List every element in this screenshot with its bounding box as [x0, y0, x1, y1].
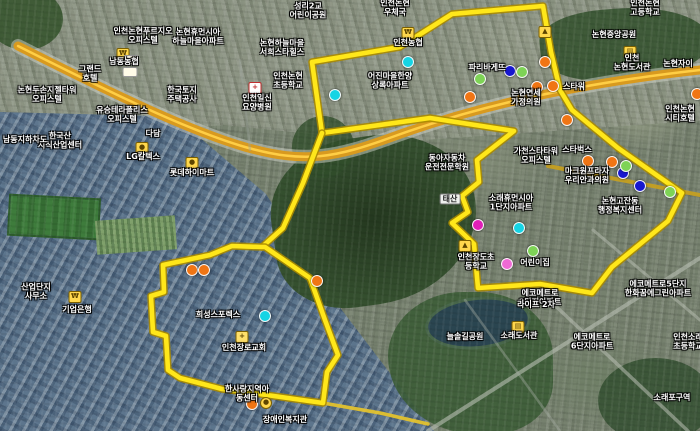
school-icon[interactable]: ▲: [459, 240, 472, 252]
map-label-line: 상록아파트: [368, 81, 412, 90]
map-label-line: 호텔: [79, 74, 101, 83]
map-label: 인천일신요양병원: [242, 95, 271, 112]
green-poi-marker[interactable]: [474, 73, 486, 85]
map-label: 한사랑지역아동센터: [225, 386, 269, 403]
green-poi-marker[interactable]: [527, 245, 539, 257]
map-label-line: 서희스타힐스: [260, 48, 304, 57]
map-label-line: LG칼텍스: [126, 153, 160, 162]
blue-poi-marker[interactable]: [634, 180, 646, 192]
map-label-line: 스타벅스: [562, 146, 591, 155]
map-label: 에코메트로5단지한화꿈에그린아파트: [625, 281, 691, 298]
road: [323, 403, 428, 424]
blue-poi-marker[interactable]: [504, 65, 516, 77]
map-label-line: 남동농협: [109, 58, 138, 67]
orange-poi-marker[interactable]: [464, 91, 476, 103]
map-label-line: 논현자이: [663, 60, 692, 69]
hospital-icon[interactable]: +: [249, 82, 262, 94]
map-label: 논현두손지젤타워오피스텔: [18, 87, 77, 104]
orange-poi-marker[interactable]: [691, 88, 700, 100]
map-label: 기업은행: [62, 306, 91, 315]
map-label-line: 우체국: [380, 8, 409, 17]
map-label: 인천장도초등학교: [458, 254, 495, 271]
map-label-line: 초등학교: [273, 81, 302, 90]
map-label: 태산: [440, 194, 461, 205]
map-label-line: 1단지아파트: [489, 203, 533, 212]
map-label: 늘솔길공원: [447, 333, 484, 342]
map-label-line: 논현도서관: [614, 63, 651, 72]
map-label-line: 남동지하차도: [3, 136, 47, 145]
map-label-line: 행정복지센터: [598, 206, 642, 215]
map-label: 라이프 2차: [517, 301, 555, 310]
green-poi-marker[interactable]: [516, 66, 528, 78]
map-label: 논현중앙공원: [592, 31, 636, 40]
map-label: 어진마을한양상록아파트: [368, 73, 412, 90]
map-label: 그랜드호텔: [79, 66, 101, 83]
map-label: 남동지하차도: [3, 136, 47, 145]
map-label: 스타벅스: [562, 146, 591, 155]
map-label: 파리바게뜨: [469, 64, 506, 73]
map-label: 가천스타타워오피스텔: [514, 148, 558, 165]
map-label: 소래포구역: [654, 394, 691, 403]
map-label: 한국토지주택공사: [167, 87, 196, 104]
map-label-line: 소래도서관: [501, 332, 538, 341]
orange-poi-marker[interactable]: [561, 114, 573, 126]
orange-poi-marker[interactable]: [539, 56, 551, 68]
map-label-line: 파리바게뜨: [469, 64, 506, 73]
map-label: 논현연세가정의원: [511, 90, 540, 107]
map-label: 어린이집: [520, 259, 549, 268]
map-label: 희성스포렉스: [196, 311, 240, 320]
map-label-line: 오피스텔: [514, 156, 558, 165]
map-label: 산업단지사무소: [21, 284, 50, 301]
pink-poi-marker[interactable]: [501, 258, 513, 270]
map-label-line: 롯데하이마트: [170, 169, 214, 178]
map-label-line: 고등학교: [630, 8, 659, 17]
cyan-poi-marker[interactable]: [513, 222, 525, 234]
map-label: 인천논현고등학교: [630, 0, 659, 17]
map-label-line: 시티호텔: [665, 114, 694, 123]
orange-poi-marker[interactable]: [186, 264, 198, 276]
green-poi-marker[interactable]: [664, 186, 676, 198]
map-label: 스타워: [563, 83, 585, 92]
map-label: 논현휴먼시아하늘마을아파트: [172, 29, 224, 46]
map-label-line: 소래포구역: [654, 394, 691, 403]
map-label-line: 논현중앙공원: [592, 31, 636, 40]
map-label: LG칼텍스: [126, 153, 160, 162]
magenta-poi-marker[interactable]: [472, 219, 484, 231]
map-label-line: 한화꿈에그린아파트: [625, 289, 691, 298]
map-label-line: 인천농협: [393, 39, 422, 48]
map-label: 유승테라폴리스오피스텔: [96, 107, 148, 124]
map-label: 인천소래초등학교: [673, 334, 700, 351]
map-label-line: 스타워: [563, 83, 585, 92]
road: [465, 300, 560, 431]
map-label-line: 희성스포렉스: [196, 311, 240, 320]
map-label-line: 하늘마을아파트: [172, 37, 224, 46]
orange-poi-marker[interactable]: [582, 155, 594, 167]
map-label: 다담: [146, 130, 161, 139]
district-boundary: [151, 246, 338, 403]
map-label: 인천논현초등학교: [273, 73, 302, 90]
map-label: 인천논현도서관: [614, 55, 651, 72]
map-label: 인천논현우체국: [380, 0, 409, 17]
map-label-line: 오피스텔: [18, 95, 77, 104]
map-label-line: 초등학교: [673, 342, 700, 351]
map-label: 남동농협: [109, 58, 138, 67]
map-label-line: 기업은행: [62, 306, 91, 315]
map-label-line: 다담: [146, 130, 161, 139]
map-label-line: 6단지아파트: [571, 342, 613, 351]
map-label: 인천논현푸르지오오피스텔: [114, 28, 173, 45]
map-label: 장애인복지관: [263, 416, 307, 425]
green-poi-marker[interactable]: [620, 160, 632, 172]
map-label-line: 라이프 2차: [517, 301, 555, 310]
overlay-svg: [0, 0, 700, 431]
map-label-line: 어린이공원: [290, 11, 327, 20]
map-label: 인천장로교회: [222, 344, 266, 353]
map-label: 롯데하이마트: [170, 169, 214, 178]
map-label-line: 가정의원: [511, 98, 540, 107]
map-label: 소래도서관: [501, 332, 538, 341]
map-label: 성리2교어린이공원: [290, 3, 327, 20]
map-label: 논현하늘마을서희스타힐스: [260, 40, 304, 57]
orange-poi-marker[interactable]: [547, 80, 559, 92]
school-icon[interactable]: ▲: [539, 26, 552, 38]
map-label-line: 오피스텔: [96, 115, 148, 124]
cyan-poi-marker[interactable]: [329, 89, 341, 101]
map-label-line: 어린이집: [520, 259, 549, 268]
map-label: 동아자동차운전전문학원: [425, 155, 469, 172]
cyan-poi-marker[interactable]: [259, 310, 271, 322]
orange-poi-marker[interactable]: [198, 264, 210, 276]
map-label: 논현자이: [663, 60, 692, 69]
map-label: 인천논현시티호텔: [665, 106, 694, 123]
map-label: 논현고잔동행정복지센터: [598, 198, 642, 215]
orange-poi-marker[interactable]: [311, 275, 323, 287]
satellite-map-view[interactable]: ₩₩₩▤▤●●+▲▲+●인천논현푸르지오오피스텔논현휴먼시아하늘마을아파트남동농…: [0, 0, 700, 431]
map-label-line: 등학교: [458, 262, 495, 271]
bank-icon[interactable]: ₩: [69, 291, 82, 303]
map-label-line: 인천장로교회: [222, 344, 266, 353]
map-label-line: 요양병원: [242, 103, 271, 112]
road: [545, 296, 688, 431]
map-label-line: 운전전문학원: [425, 163, 469, 172]
map-label: 인천농협: [393, 39, 422, 48]
route-shield-icon[interactable]: [123, 67, 138, 77]
map-label-line: 늘솔길공원: [447, 333, 484, 342]
map-label: 소래휴먼시아1단지아파트: [489, 195, 533, 212]
church-icon[interactable]: +: [236, 331, 249, 343]
map-label-line: 장애인복지관: [263, 416, 307, 425]
map-label-line: 동센터: [225, 394, 269, 403]
map-label: 에코메트로6단지아파트: [571, 334, 613, 351]
map-label-line: 태산: [443, 195, 458, 204]
map-label-line: 우리안과의원: [565, 176, 609, 185]
cyan-poi-marker[interactable]: [402, 56, 414, 68]
map-label-line: 오피스텔: [114, 36, 173, 45]
map-label-line: 주택공사: [167, 95, 196, 104]
map-label-line: 사무소: [21, 292, 50, 301]
map-label: 마크원프라자우리안과의원: [565, 168, 609, 185]
